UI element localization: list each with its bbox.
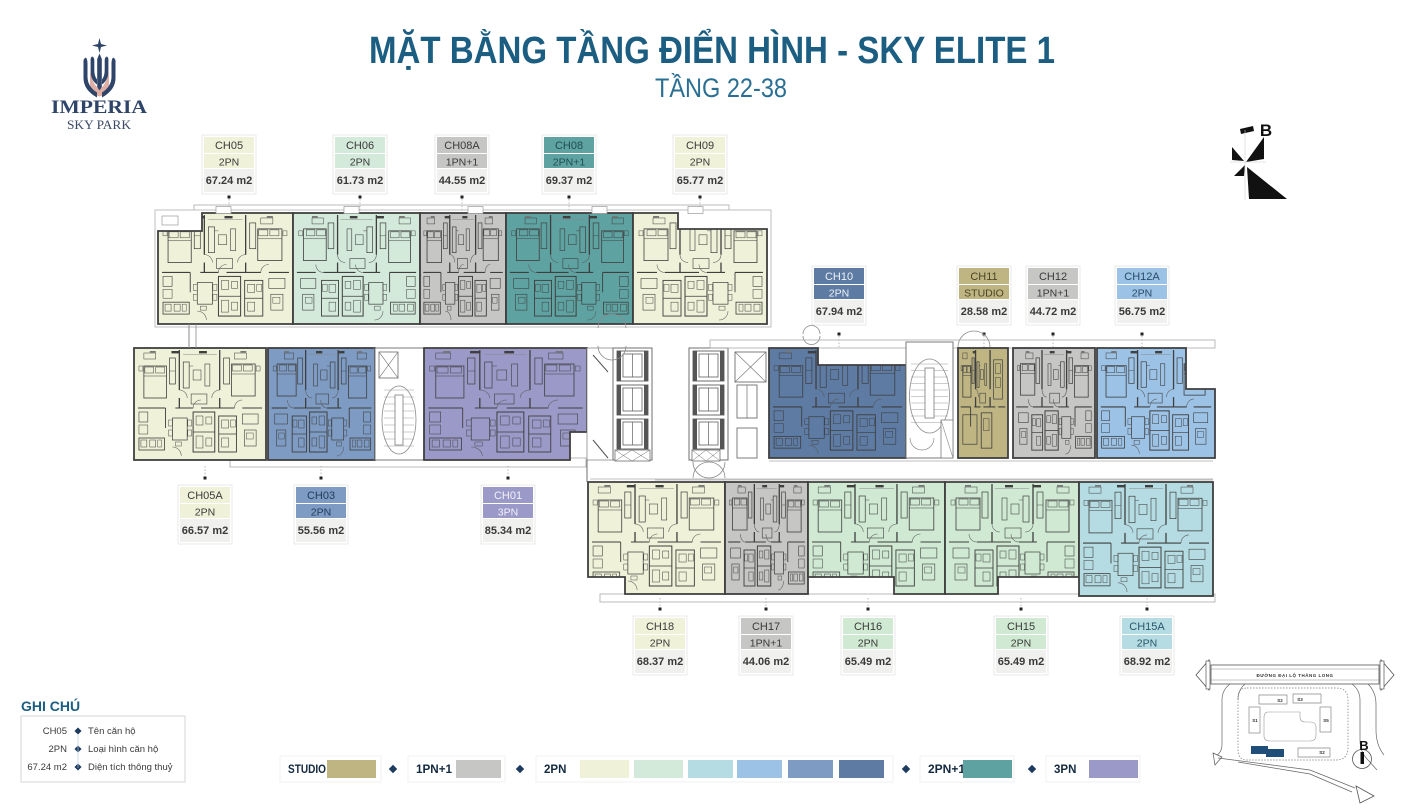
svg-text:3PN: 3PN [498, 507, 518, 519]
svg-text:2PN: 2PN [650, 638, 670, 650]
svg-text:S2: S2 [1319, 750, 1325, 755]
svg-text:TẦNG 22-38: TẦNG 22-38 [655, 72, 787, 103]
svg-text:CH05A: CH05A [187, 490, 223, 502]
svg-text:CH10: CH10 [825, 271, 853, 283]
svg-text:Tên căn hộ: Tên căn hộ [88, 726, 136, 737]
svg-text:CH11: CH11 [970, 271, 997, 283]
svg-text:CH12A: CH12A [1124, 271, 1160, 283]
svg-text:STUDIO: STUDIO [964, 288, 1004, 300]
svg-text:CH08A: CH08A [444, 140, 480, 152]
svg-text:2PN: 2PN [1132, 288, 1152, 300]
svg-text:44.06 m2: 44.06 m2 [743, 656, 789, 668]
svg-text:2PN: 2PN [829, 288, 849, 300]
svg-text:2PN: 2PN [219, 157, 239, 169]
svg-text:CH15: CH15 [1007, 621, 1035, 633]
svg-text:28.58 m2: 28.58 m2 [961, 306, 1007, 318]
svg-text:2PN: 2PN [858, 638, 878, 650]
svg-text:CH06: CH06 [346, 140, 374, 152]
svg-text:1PN+1: 1PN+1 [446, 157, 479, 169]
svg-text:CH12: CH12 [1039, 271, 1067, 283]
svg-text:67.24 m2: 67.24 m2 [206, 175, 252, 187]
svg-text:65.49 m2: 65.49 m2 [845, 656, 891, 668]
svg-text:55.56 m2: 55.56 m2 [298, 525, 344, 537]
svg-text:44.55 m2: 44.55 m2 [439, 175, 485, 187]
svg-text:66.57 m2: 66.57 m2 [182, 525, 228, 537]
svg-text:S5: S5 [1323, 718, 1329, 723]
svg-text:65.49 m2: 65.49 m2 [998, 656, 1044, 668]
svg-text:2PN: 2PN [544, 764, 566, 776]
svg-text:S2: S2 [1277, 698, 1283, 703]
svg-text:MẶT BẰNG TẦNG ĐIỂN HÌNH - SKY: MẶT BẰNG TẦNG ĐIỂN HÌNH - SKY ELITE 1 [369, 27, 1055, 72]
svg-text:ĐƯỜNG ĐẠI LỘ THĂNG LONG: ĐƯỜNG ĐẠI LỘ THĂNG LONG [1256, 671, 1333, 678]
svg-text:68.92 m2: 68.92 m2 [1124, 656, 1170, 668]
svg-text:85.34 m2: 85.34 m2 [485, 525, 531, 537]
svg-text:CH01: CH01 [494, 490, 522, 502]
svg-text:2PN+1: 2PN+1 [928, 764, 966, 776]
svg-text:B: B [1260, 121, 1272, 140]
svg-text:1PN+1: 1PN+1 [416, 764, 453, 776]
svg-text:2PN: 2PN [1011, 638, 1031, 650]
svg-text:1PN+1: 1PN+1 [750, 638, 783, 650]
svg-text:67.94 m2: 67.94 m2 [816, 306, 862, 318]
svg-text:3PN: 3PN [1054, 764, 1076, 776]
svg-text:56.75 m2: 56.75 m2 [1119, 306, 1165, 318]
svg-text:2PN+1: 2PN+1 [553, 157, 586, 169]
svg-text:2PN: 2PN [49, 744, 68, 755]
svg-text:CH05: CH05 [215, 140, 243, 152]
svg-text:CH15A: CH15A [1129, 621, 1165, 633]
svg-text:44.72 m2: 44.72 m2 [1030, 306, 1076, 318]
svg-text:1PN+1: 1PN+1 [1037, 288, 1070, 300]
svg-text:CH03: CH03 [307, 490, 335, 502]
svg-text:CH18: CH18 [646, 621, 674, 633]
svg-text:GHI CHÚ: GHI CHÚ [21, 697, 80, 714]
svg-text:2PN: 2PN [311, 507, 331, 519]
svg-text:CH16: CH16 [854, 621, 882, 633]
svg-text:2PN: 2PN [690, 157, 710, 169]
svg-text:S1: S1 [1252, 718, 1258, 723]
svg-text:CH09: CH09 [686, 140, 714, 152]
svg-text:CH05: CH05 [43, 726, 67, 737]
svg-text:2PN: 2PN [195, 507, 215, 519]
svg-text:B: B [1359, 738, 1368, 753]
svg-text:Loại hình căn hộ: Loại hình căn hộ [88, 744, 158, 755]
svg-text:S3: S3 [1297, 697, 1303, 702]
svg-text:69.37 m2: 69.37 m2 [546, 175, 592, 187]
svg-text:2PN: 2PN [1137, 638, 1157, 650]
svg-text:CH08: CH08 [555, 140, 583, 152]
svg-text:65.77 m2: 65.77 m2 [677, 175, 723, 187]
svg-text:SKY PARK: SKY PARK [67, 118, 131, 132]
svg-text:68.37 m2: 68.37 m2 [637, 656, 683, 668]
svg-text:IMPERIA: IMPERIA [51, 97, 147, 118]
svg-text:Diện tích thông thuỷ: Diện tích thông thuỷ [88, 762, 173, 773]
svg-text:CH17: CH17 [752, 621, 780, 633]
svg-text:67.24 m2: 67.24 m2 [27, 762, 67, 773]
svg-text:STUDIO: STUDIO [288, 764, 326, 776]
svg-text:2PN: 2PN [350, 157, 370, 169]
svg-text:61.73 m2: 61.73 m2 [337, 175, 383, 187]
